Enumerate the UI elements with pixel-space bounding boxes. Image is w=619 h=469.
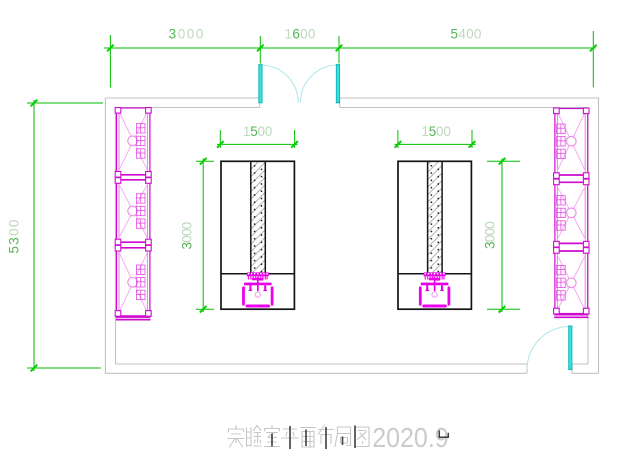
svg-text:1500: 1500: [421, 124, 450, 139]
svg-text:3000: 3000: [483, 222, 498, 249]
svg-text:3000: 3000: [169, 27, 205, 42]
svg-text:1600: 1600: [285, 27, 316, 42]
svg-text:2020.9: 2020.9: [372, 422, 449, 453]
svg-text:3000: 3000: [180, 222, 195, 249]
svg-text:1500: 1500: [243, 124, 272, 139]
svg-text:5300: 5300: [7, 218, 22, 253]
svg-text:5400: 5400: [451, 27, 482, 42]
